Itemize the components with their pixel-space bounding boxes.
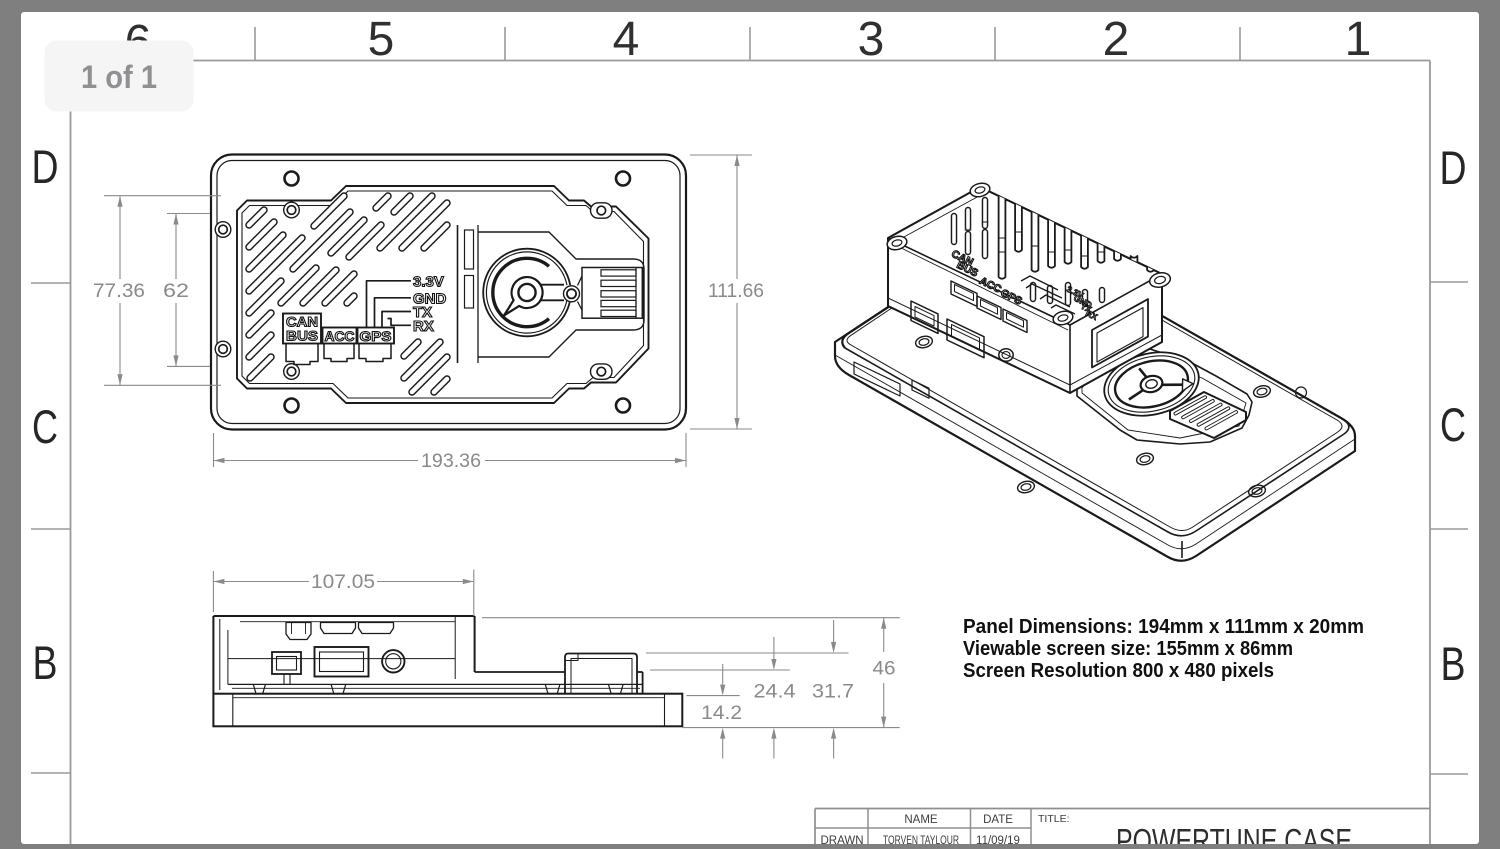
svg-text:11/09/19: 11/09/19 [976, 835, 1020, 844]
svg-text:D: D [32, 140, 59, 193]
svg-text:DRAWN: DRAWN [820, 835, 863, 844]
svg-text:POWERTUNE CASE: POWERTUNE CASE [1116, 822, 1352, 844]
svg-text:1 of 1: 1 of 1 [81, 59, 157, 95]
svg-text:24.4: 24.4 [754, 681, 796, 703]
svg-text:5: 5 [368, 13, 395, 66]
svg-text:77.36: 77.36 [93, 280, 145, 302]
svg-text:62: 62 [163, 280, 189, 302]
svg-text:14.2: 14.2 [701, 702, 742, 724]
svg-text:ACC: ACC [325, 328, 355, 344]
svg-text:Screen Resolution 800 x 480 pi: Screen Resolution 800 x 480 pixels [963, 659, 1274, 682]
svg-text:2: 2 [1103, 13, 1130, 66]
svg-text:46: 46 [873, 658, 896, 680]
svg-text:NAME: NAME [904, 814, 938, 826]
svg-text:C: C [32, 400, 58, 453]
svg-text:193.36: 193.36 [421, 450, 481, 472]
svg-text:111.66: 111.66 [708, 280, 764, 302]
svg-text:C: C [1440, 398, 1466, 451]
svg-text:DATE: DATE [983, 814, 1013, 826]
svg-text:B: B [33, 636, 58, 689]
svg-text:3.3V: 3.3V [413, 274, 444, 291]
svg-text:Panel Dimensions: 194mm x 111m: Panel Dimensions: 194mm x 111mm x 20mm [963, 615, 1364, 638]
svg-text:D: D [1440, 141, 1467, 194]
svg-text:31.7: 31.7 [812, 681, 854, 703]
svg-text:GPS: GPS [360, 328, 392, 344]
svg-text:BUS: BUS [286, 328, 318, 344]
svg-text:B: B [1441, 637, 1466, 690]
svg-text:4: 4 [613, 13, 640, 66]
svg-text:1: 1 [1345, 13, 1372, 66]
svg-text:TITLE:: TITLE: [1038, 813, 1070, 825]
svg-text:3: 3 [858, 13, 885, 66]
svg-text:Viewable screen size: 155mm x: Viewable screen size: 155mm x 86mm [963, 637, 1293, 660]
svg-text:RX: RX [413, 318, 434, 335]
svg-text:TORVEN TAYLOUR: TORVEN TAYLOUR [883, 835, 959, 844]
svg-text:107.05: 107.05 [311, 571, 375, 593]
